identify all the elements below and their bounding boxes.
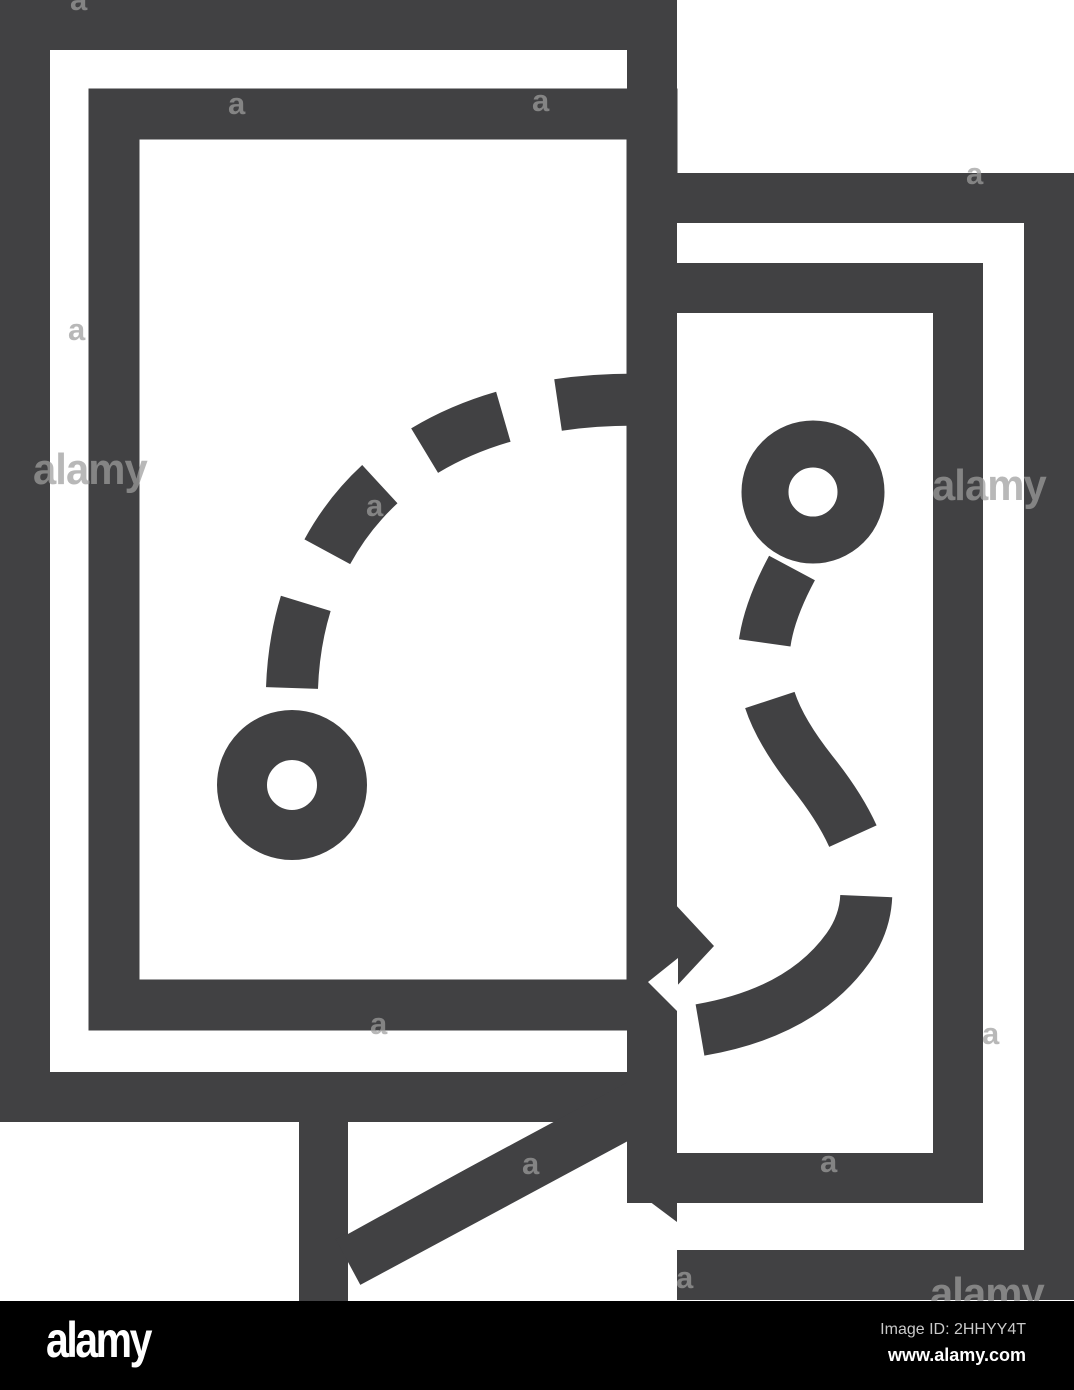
left-route-marker-ring	[242, 735, 342, 835]
image-id-text: Image ID: 2HHYY4T	[880, 1321, 1026, 1339]
right-card-outer-outline	[652, 198, 1049, 1275]
tail-vertical-bar	[299, 1122, 348, 1302]
alamy-url-text: www.alamy.com	[880, 1345, 1026, 1366]
alamy-footer-bar: alamy Image ID: 2HHYY4T www.alamy.com	[0, 1301, 1074, 1390]
alamy-logo: alamy	[46, 1311, 150, 1369]
stock-image-page: a a a a a a a a a a a alamy alamy alamy …	[0, 0, 1074, 1390]
left-card-inner-outline	[114, 114, 652, 1005]
left-dashed-route	[292, 400, 655, 688]
footer-meta: Image ID: 2HHYY4T www.alamy.com	[880, 1321, 1026, 1366]
tactics-icon	[0, 0, 1074, 1302]
